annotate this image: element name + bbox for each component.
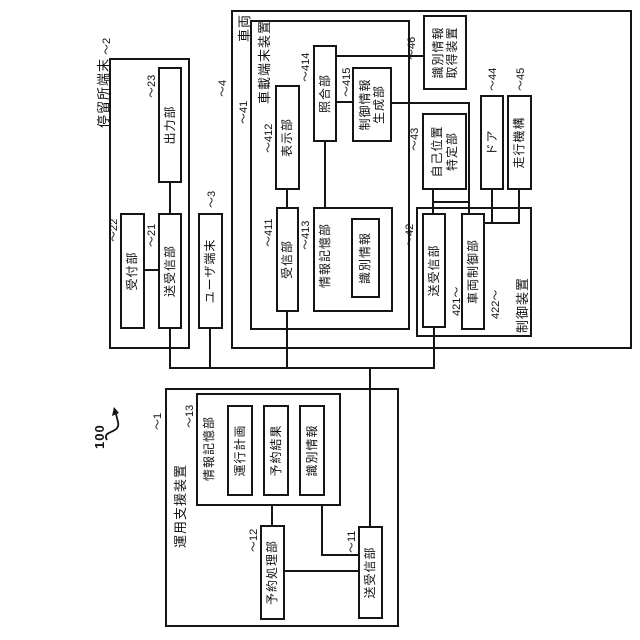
line-storage413-matching bbox=[324, 142, 326, 207]
line-resv12-storage13 bbox=[271, 506, 273, 525]
drive-45-box: 走行機構 bbox=[507, 95, 532, 190]
line-trunk-receiver411 bbox=[286, 312, 288, 368]
stop-terminal-label: 停留所端末 bbox=[93, 58, 112, 128]
ref-23: 〜23 bbox=[143, 75, 159, 98]
matching-414-box: 照合部 bbox=[313, 45, 337, 142]
onboard-terminal-label: 車載端末装置 bbox=[254, 20, 273, 104]
line-ctrlgen-down bbox=[392, 102, 470, 104]
ref-42: 〜42 bbox=[401, 224, 417, 247]
id-acquisition-46-box: 識別情報 取得装置 bbox=[423, 15, 467, 90]
ref-4: 〜4 bbox=[214, 80, 230, 97]
transceiver-421-box: 送受信部 bbox=[422, 213, 446, 328]
transceiver-21-box: 送受信部 bbox=[158, 213, 182, 329]
ref-21: 〜21 bbox=[143, 224, 159, 247]
ref-414: 〜414 bbox=[297, 53, 313, 82]
user-terminal-box: ユーザ端末 bbox=[198, 213, 223, 329]
support-device-label: 運用支援装置 bbox=[170, 464, 189, 548]
patent-figure: 運行計画 予約結果 識別情報 予約処理部 送受信部 受付部 送受信部 出力部 ユ… bbox=[0, 0, 640, 640]
self-position-43-box: 自己位置 特定部 bbox=[422, 113, 467, 190]
vehicle-control-422-box: 車両制御部 bbox=[461, 213, 485, 330]
ref-411: 〜411 bbox=[260, 218, 276, 247]
receiver-411-box: 受信部 bbox=[276, 207, 299, 312]
ref-41: 〜41 bbox=[235, 101, 251, 124]
ref-413: 〜413 bbox=[297, 221, 313, 250]
ref-2: 〜2 bbox=[98, 38, 114, 55]
ref-44: 〜44 bbox=[484, 68, 500, 91]
line-trunk-transceiver21 bbox=[169, 328, 171, 368]
ref-415: 〜415 bbox=[338, 68, 354, 97]
line-resv12-trx11 bbox=[285, 570, 358, 572]
vehicle-label: 車両 bbox=[234, 14, 253, 42]
line-ladder-cross bbox=[432, 201, 469, 203]
ref-11: 〜11 bbox=[343, 531, 359, 553]
display-412-box: 表示部 bbox=[275, 85, 300, 190]
ref-412: 〜412 bbox=[260, 124, 276, 153]
door-44-box: ドア bbox=[480, 95, 504, 190]
ref-45: 〜45 bbox=[512, 68, 528, 91]
ref-22: 〜22 bbox=[105, 219, 121, 242]
line-receiver-display bbox=[286, 189, 288, 207]
ref-1: 〜1 bbox=[149, 413, 165, 430]
operation-plan-box: 運行計画 bbox=[227, 405, 253, 496]
ref-46: 〜46 bbox=[403, 37, 419, 60]
line-transceiver21-output bbox=[169, 183, 171, 213]
info-storage-13-label: 情報記憶部 bbox=[200, 416, 217, 481]
transceiver-11-box: 送受信部 bbox=[358, 526, 383, 619]
line-spine-drive bbox=[518, 190, 520, 224]
line-ladder-bottom bbox=[468, 103, 470, 213]
control-device-label: 制御装置 bbox=[512, 277, 531, 333]
block-diagram: 運行計画 予約結果 識別情報 予約処理部 送受信部 受付部 送受信部 出力部 ユ… bbox=[0, 0, 640, 640]
ref-43: 〜43 bbox=[406, 128, 422, 151]
ref-3: 〜3 bbox=[203, 191, 219, 208]
reception-22-box: 受付部 bbox=[120, 213, 145, 329]
reservation-processing-box: 予約処理部 bbox=[260, 525, 285, 620]
line-trunk-transceiver421 bbox=[433, 327, 435, 368]
ref-422: 422〜 bbox=[487, 290, 503, 319]
system-ref-arrow bbox=[99, 402, 129, 444]
control-info-gen-415-box: 制御情報 生成部 bbox=[352, 67, 392, 142]
reservation-result-box: 予約結果 bbox=[263, 405, 289, 496]
id-info-13-box: 識別情報 bbox=[299, 405, 325, 496]
ref-13: 〜13 bbox=[181, 405, 197, 428]
line-trunk-user-terminal bbox=[209, 328, 211, 368]
line-matching-ctrlgen bbox=[337, 101, 353, 103]
id-info-413-box: 識別情報 bbox=[351, 218, 380, 298]
info-storage-413-label: 情報記憶部 bbox=[316, 223, 333, 288]
ref-421: 421〜 bbox=[448, 287, 464, 316]
line-trunk-transceiver11 bbox=[369, 368, 371, 526]
output-23-box: 出力部 bbox=[158, 67, 182, 183]
line-reception-transceiver21 bbox=[145, 269, 158, 271]
line-spine-door bbox=[491, 190, 493, 224]
ref-12: 〜12 bbox=[245, 529, 261, 552]
line-storage13-trx11-v bbox=[321, 554, 358, 556]
line-storage13-trx11-h bbox=[321, 506, 323, 556]
